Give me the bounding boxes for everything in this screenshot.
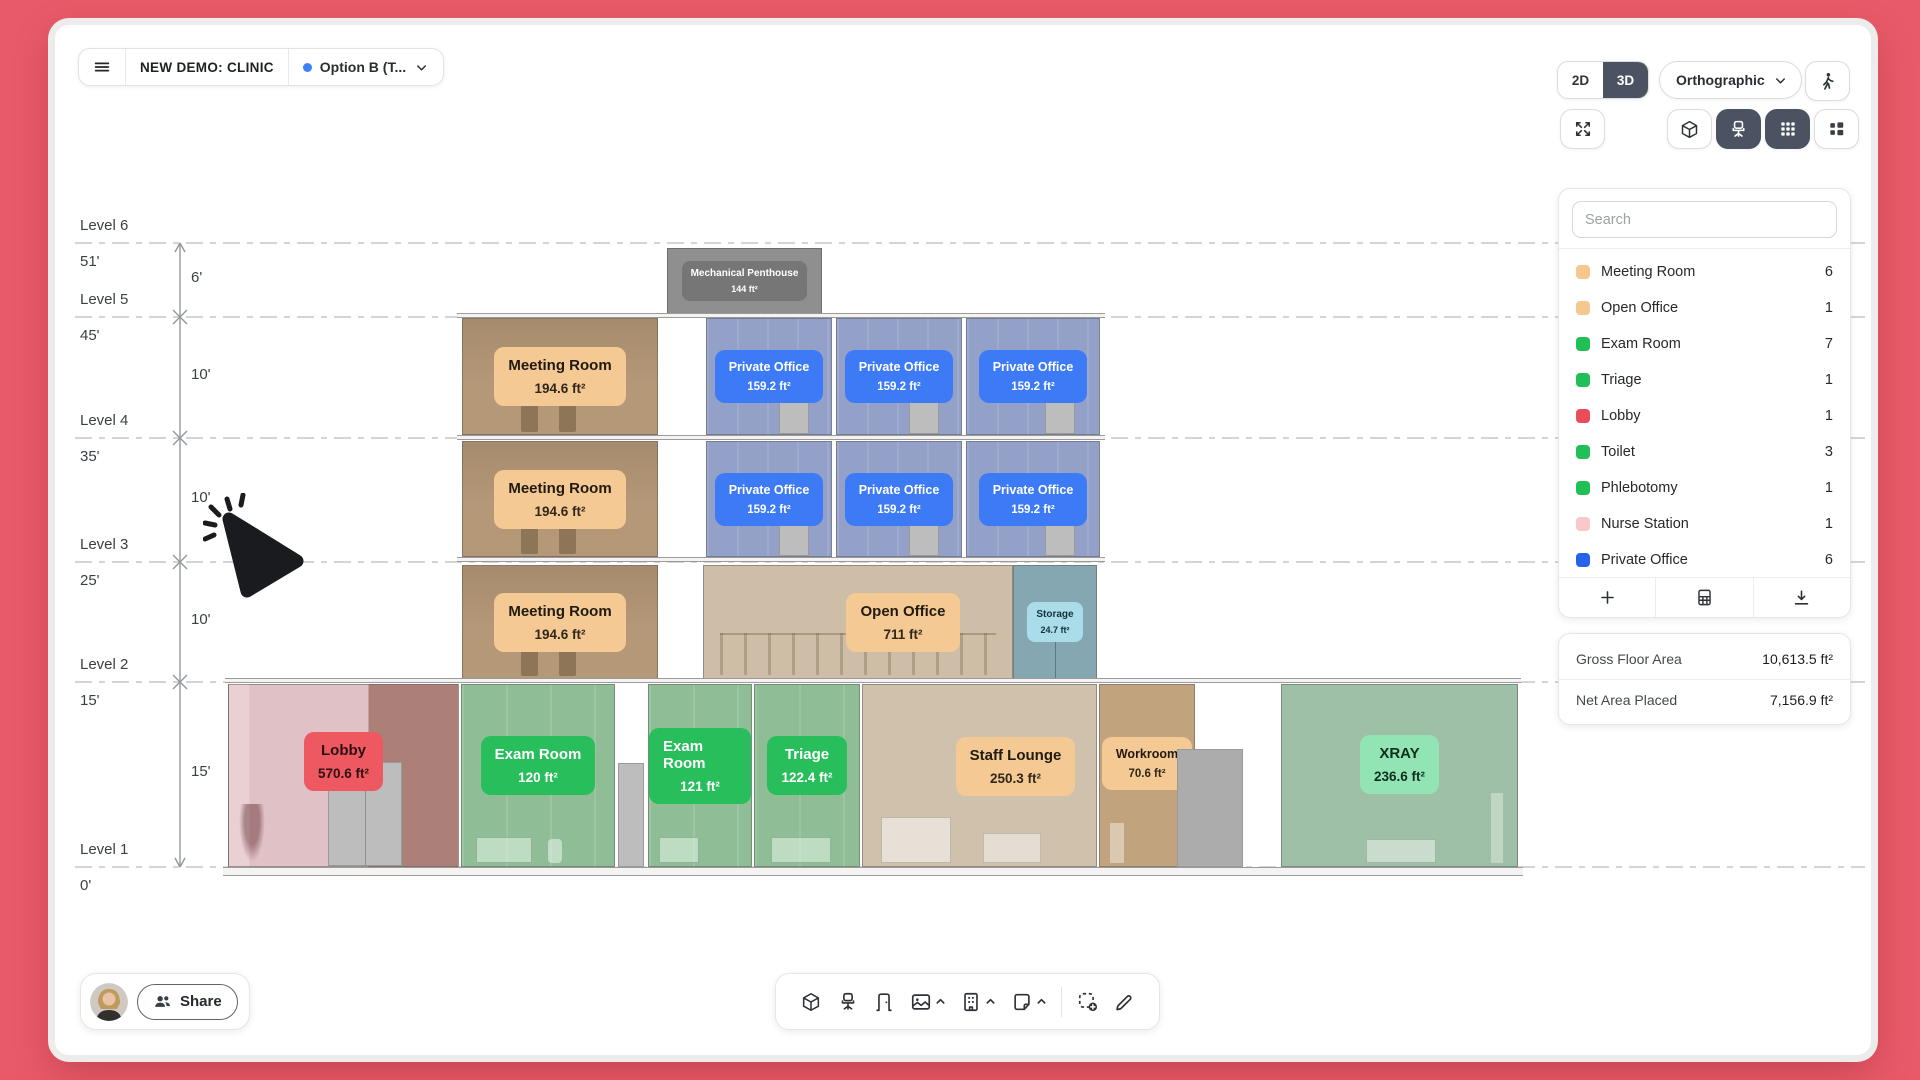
count-badge: 3 [1825, 444, 1833, 460]
fullscreen-icon [1573, 119, 1593, 139]
furniture [548, 839, 562, 863]
level-label: Level 5 [80, 291, 128, 308]
color-swatch [1576, 265, 1590, 279]
pen-button[interactable] [1113, 991, 1135, 1013]
floor-slab [457, 435, 1105, 440]
share-label: Share [180, 993, 222, 1010]
version-label: Option B (T... [320, 59, 406, 75]
furniture [521, 402, 538, 432]
elevation-label: 15' [80, 692, 100, 709]
select-add-icon [1077, 991, 1099, 1013]
room-label: Exam Room 120 ft² [481, 736, 596, 795]
select-add-button[interactable] [1077, 991, 1099, 1013]
insert-note-button[interactable] [1011, 991, 1047, 1013]
room-xray[interactable]: XRAY 236.6 ft² [1281, 684, 1518, 867]
floor-slab [225, 678, 1521, 683]
room-private-office[interactable]: Private Office 159.2 ft² [836, 441, 962, 557]
list-item-toilet[interactable]: Toilet 3 [1559, 434, 1850, 470]
rooms-sidebar: Meeting Room 6 Open Office 1 Exam Room 7… [1558, 188, 1851, 618]
count-badge: 1 [1825, 372, 1833, 388]
insert-image-button[interactable] [910, 991, 946, 1013]
list-item-triage[interactable]: Triage 1 [1559, 362, 1850, 398]
room-meeting-room[interactable]: Meeting Room 194.6 ft² [462, 318, 658, 435]
cube-view-button[interactable] [1667, 109, 1712, 149]
list-item-nurse-station[interactable]: Nurse Station 1 [1559, 506, 1850, 542]
color-swatch [1576, 373, 1590, 387]
insert-furniture-button[interactable] [837, 991, 859, 1013]
room-mechanical-penthouse[interactable]: Mechanical Penthouse 144 ft² [667, 248, 822, 314]
height-span-label: 6' [191, 269, 202, 286]
walk-icon [1817, 71, 1838, 92]
floor-slab [457, 313, 1105, 318]
version-dot [303, 63, 312, 72]
chevron-up-icon [1036, 996, 1047, 1007]
furniture [1491, 793, 1503, 863]
color-swatch [1576, 553, 1590, 567]
height-span-label: 15' [191, 763, 211, 780]
version-dropdown[interactable]: Option B (T... [288, 49, 443, 85]
count-badge: 7 [1825, 336, 1833, 352]
door-icon [873, 991, 895, 1013]
level-label: Level 4 [80, 412, 128, 429]
list-item-exam-room[interactable]: Exam Room 7 [1559, 326, 1850, 362]
room-label: Meeting Room 194.6 ft² [494, 593, 625, 652]
download-icon [1792, 588, 1811, 607]
list-item-lobby[interactable]: Lobby 1 [1559, 398, 1850, 434]
level-label: Level 1 [80, 841, 128, 858]
level-label: Level 2 [80, 656, 128, 673]
insert-door-button[interactable] [873, 991, 895, 1013]
room-label: Staff Lounge 250.3 ft² [956, 737, 1076, 796]
room-label: Exam Room 121 ft² [649, 728, 751, 804]
room-type-list: Meeting Room 6 Open Office 1 Exam Room 7… [1559, 249, 1850, 577]
room-exam-room[interactable]: Exam Room 121 ft² [648, 684, 752, 867]
search-input[interactable] [1572, 201, 1837, 238]
mode-3d-button[interactable]: 3D [1603, 62, 1648, 98]
schedule-button[interactable] [1655, 578, 1752, 617]
color-swatch [1576, 409, 1590, 423]
room-private-office[interactable]: Private Office 159.2 ft² [706, 441, 832, 557]
room-label: Private Office 159.2 ft² [845, 473, 954, 526]
furniture [476, 837, 532, 863]
level-label: Level 3 [80, 536, 128, 553]
room-triage[interactable]: Triage 122.4 ft² [754, 684, 860, 867]
chevron-up-icon [935, 996, 946, 1007]
list-item-private-office[interactable]: Private Office 6 [1559, 542, 1850, 577]
color-swatch [1576, 337, 1590, 351]
door [618, 763, 644, 867]
color-swatch [1576, 481, 1590, 495]
chevron-down-icon [414, 60, 429, 75]
room-storage[interactable]: Storage 24.7 ft² [1013, 565, 1097, 679]
add-room-button[interactable] [1559, 578, 1655, 617]
spreadsheet-icon [1695, 588, 1714, 607]
room-staff-lounge[interactable]: Staff Lounge 250.3 ft² [862, 684, 1097, 867]
elevation-label: 25' [80, 572, 100, 589]
walk-mode-button[interactable] [1805, 61, 1850, 101]
furniture [983, 833, 1041, 863]
room-exam-room[interactable]: Exam Room 120 ft² [461, 684, 615, 867]
projection-dropdown[interactable]: Orthographic [1659, 61, 1802, 99]
room-label: Triage 122.4 ft² [767, 736, 846, 795]
furniture [521, 524, 538, 554]
add-icon [1598, 588, 1617, 607]
toolbar-divider [1061, 987, 1062, 1017]
color-swatch [1576, 517, 1590, 531]
room-label: Meeting Room 194.6 ft² [494, 470, 625, 529]
cube-icon [1679, 119, 1700, 140]
list-item-meeting-room[interactable]: Meeting Room 6 [1559, 254, 1850, 290]
room-label: Lobby 570.6 ft² [304, 732, 383, 791]
share-button[interactable]: Share [137, 984, 238, 1020]
room-private-office[interactable]: Private Office 159.2 ft² [836, 318, 962, 435]
page-title: NEW DEMO: CLINIC [140, 60, 274, 75]
layout-tiles-icon [1827, 119, 1847, 139]
mode-2d-button[interactable]: 2D [1558, 62, 1603, 98]
level-label: Level 6 [80, 217, 128, 234]
list-item-open-office[interactable]: Open Office 1 [1559, 290, 1850, 326]
color-swatch [1576, 445, 1590, 459]
furniture [1110, 823, 1124, 863]
room-label: Private Office 159.2 ft² [715, 473, 824, 526]
office-chair-icon [837, 991, 859, 1013]
view-mode-toggle: 2D 3D [1557, 61, 1649, 99]
people-icon [153, 992, 172, 1011]
count-badge: 6 [1825, 264, 1833, 280]
xray-table [1366, 839, 1436, 863]
header: NEW DEMO: CLINIC Option B (T... [78, 48, 444, 86]
stat-net-area-placed: Net Area Placed 7,156.9 ft² [1559, 679, 1850, 720]
plant [239, 804, 265, 862]
menu-button[interactable] [79, 49, 125, 85]
hamburger-icon [92, 57, 112, 77]
count-badge: 1 [1825, 516, 1833, 532]
room-private-office[interactable]: Private Office 159.2 ft² [966, 441, 1100, 557]
cabinet [1177, 749, 1243, 867]
room-open-office[interactable]: Open Office 711 ft² [703, 565, 1013, 679]
stat-gross-floor-area: Gross Floor Area 10,613.5 ft² [1559, 638, 1850, 679]
chevron-down-icon [1773, 73, 1788, 88]
room-meeting-room[interactable]: Meeting Room 194.6 ft² [462, 565, 658, 679]
insert-volume-button[interactable] [800, 991, 822, 1013]
layout-view-button[interactable] [1814, 109, 1859, 149]
cube-icon [800, 991, 822, 1013]
bottom-toolbar [775, 973, 1160, 1030]
area-stats-panel: Gross Floor Area 10,613.5 ft² Net Area P… [1558, 633, 1851, 725]
chevron-up-icon [985, 996, 996, 1007]
height-span-label: 10' [191, 489, 211, 506]
room-label: Private Office 159.2 ft² [715, 350, 824, 403]
furniture [659, 837, 699, 863]
furniture [559, 524, 576, 554]
height-span-label: 10' [191, 366, 211, 383]
view-options-group [1667, 109, 1859, 149]
floor-slab [457, 557, 1105, 562]
dimension-line [173, 243, 187, 867]
app-window: NEW DEMO: CLINIC Option B (T... 2D 3D Or… [55, 25, 1871, 1055]
office-chair-icon [1728, 119, 1749, 140]
furniture [559, 402, 576, 432]
furniture-view-button[interactable] [1716, 109, 1761, 149]
export-button[interactable] [1753, 578, 1850, 617]
furniture [881, 817, 951, 863]
room-label: Private Office 159.2 ft² [979, 350, 1088, 403]
furniture [771, 837, 831, 863]
fullscreen-button[interactable] [1560, 109, 1605, 149]
count-badge: 1 [1825, 408, 1833, 424]
room-private-office[interactable]: Private Office 159.2 ft² [706, 318, 832, 435]
share-panel: Share [80, 973, 250, 1030]
room-private-office[interactable]: Private Office 159.2 ft² [966, 318, 1100, 435]
room-label: Storage 24.7 ft² [1027, 602, 1082, 642]
document-title-section: NEW DEMO: CLINIC [125, 49, 288, 85]
sidebar-footer [1559, 577, 1850, 617]
color-swatch [1576, 301, 1590, 315]
projection-label: Orthographic [1676, 72, 1765, 88]
grid-icon [1778, 119, 1798, 139]
room-label: Open Office 711 ft² [846, 593, 959, 652]
elevation-label: 45' [80, 327, 100, 344]
elevation-label: 35' [80, 448, 100, 465]
count-badge: 6 [1825, 552, 1833, 568]
building-icon [960, 991, 982, 1013]
list-item-phlebotomy[interactable]: Phlebotomy 1 [1559, 470, 1850, 506]
pen-icon [1113, 991, 1135, 1013]
room-label: Private Office 159.2 ft² [845, 350, 954, 403]
room-label: Mechanical Penthouse 144 ft² [682, 261, 808, 301]
room-label: Private Office 159.2 ft² [979, 473, 1088, 526]
avatar[interactable] [90, 983, 128, 1021]
room-meeting-room[interactable]: Meeting Room 194.6 ft² [462, 441, 658, 557]
room-lobby[interactable]: Lobby 570.6 ft² [228, 684, 459, 867]
search-section [1559, 189, 1850, 249]
insert-building-button[interactable] [960, 991, 996, 1013]
room-label: XRAY 236.6 ft² [1360, 735, 1439, 794]
image-icon [910, 991, 932, 1013]
room-label: Meeting Room 194.6 ft² [494, 347, 625, 406]
grid-view-button[interactable] [1765, 109, 1810, 149]
note-icon [1011, 991, 1033, 1013]
ground-slab [223, 867, 1523, 876]
count-badge: 1 [1825, 300, 1833, 316]
count-badge: 1 [1825, 480, 1833, 496]
elevation-label: 51' [80, 253, 100, 270]
elevation-label: 0' [80, 877, 91, 894]
height-span-label: 10' [191, 611, 211, 628]
